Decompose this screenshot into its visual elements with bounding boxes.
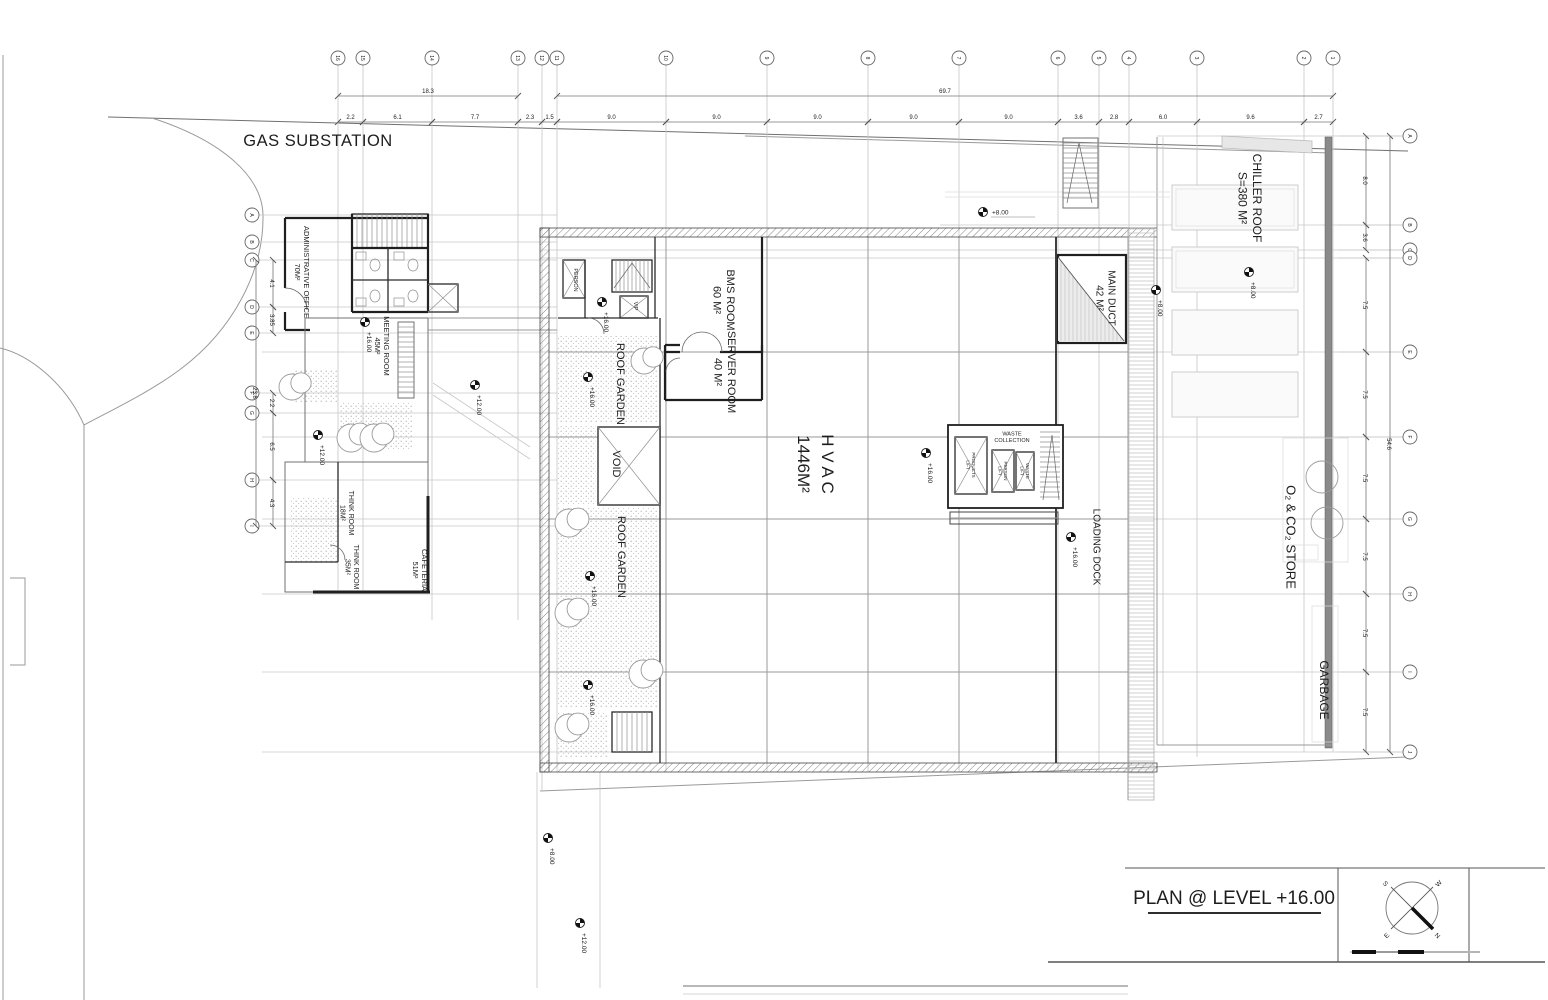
svg-text:7.5: 7.5 (1361, 708, 1367, 717)
dimension: 9.0 (764, 115, 871, 125)
level-marker: +12.00 (471, 381, 483, 416)
svg-text:6: 6 (1054, 57, 1060, 60)
svg-text:3.6: 3.6 (1361, 233, 1367, 242)
wall-band-left (540, 228, 549, 772)
svg-text:+16.00: +16.00 (590, 586, 597, 606)
svg-text:GAS SUBSTATION: GAS SUBSTATION (243, 132, 392, 150)
level-marker: +16.00 (598, 298, 610, 333)
grid-bubble-row-left-A: A (245, 208, 259, 222)
grid-bubble-col-11: 11 (550, 51, 564, 65)
svg-text:+8.00: +8.00 (548, 848, 555, 865)
grid-bubble-row-left-E: E (245, 326, 259, 340)
svg-text:GARBAGE: GARBAGE (1317, 660, 1331, 719)
core-stair-treads (614, 260, 650, 292)
compass-west: W (1434, 879, 1444, 889)
svg-text:1446M²: 1446M² (794, 435, 813, 493)
svg-text:9.6: 9.6 (1246, 115, 1255, 121)
svg-text:VOID: VOID (610, 451, 622, 478)
dimension: 3.85 (268, 304, 276, 336)
compass-south: S (1381, 880, 1389, 888)
svg-text:2.7: 2.7 (1314, 115, 1323, 121)
roof-garden-stipple-2 (558, 426, 596, 504)
loading-edge-strip (1128, 228, 1154, 800)
svg-text:8: 8 (864, 57, 870, 60)
level-marker: +12.00 (576, 919, 588, 954)
svg-text:35M²: 35M² (343, 559, 350, 576)
svg-text:60 M²: 60 M² (711, 286, 723, 314)
svg-text:THINK ROOM: THINK ROOM (347, 491, 354, 536)
svg-text:D: D (1406, 256, 1412, 260)
svg-text:23.8: 23.8 (251, 387, 257, 399)
think-room-18-label: THINK ROOM18M² (338, 491, 353, 536)
dimension: 9.0 (865, 115, 962, 125)
svg-text:4.1: 4.1 (268, 279, 274, 288)
svg-text:12: 12 (538, 55, 544, 61)
svg-text:3.85: 3.85 (268, 314, 274, 326)
svg-text:F: F (1406, 435, 1412, 438)
svg-text:9.0: 9.0 (607, 115, 616, 121)
annex-stair-2-treads (398, 327, 414, 392)
grid-bubble-row-right-A: A (1338, 129, 1417, 143)
svg-text:4.3: 4.3 (268, 499, 274, 508)
svg-text:LOADING DOCK: LOADING DOCK (1091, 509, 1102, 586)
svg-text:3: 3 (1193, 57, 1199, 60)
dimension: 6.0 (1126, 115, 1200, 125)
svg-text:7.7: 7.7 (471, 115, 480, 121)
level-marker: +16.00 (361, 318, 373, 353)
svg-text:+8.00: +8.00 (992, 210, 1009, 217)
dimension: 23.8 (251, 257, 259, 529)
svg-text:C: C (248, 258, 254, 262)
grid-bubble-col-4: 4 (1122, 51, 1136, 65)
right-wall (1325, 137, 1332, 748)
dimension: 8.0 (1361, 133, 1369, 228)
svg-text:+16.00: +16.00 (602, 312, 609, 332)
svg-text:10: 10 (662, 55, 668, 61)
svg-text:+16.00: +16.00 (1071, 547, 1078, 567)
svg-text:42 M²: 42 M² (1094, 285, 1105, 311)
svg-text:18.3: 18.3 (422, 89, 434, 95)
svg-text:PERSON: PERSON (1003, 461, 1008, 480)
svg-text:2: 2 (1300, 57, 1306, 60)
svg-text:7.5: 7.5 (1361, 552, 1367, 561)
grid-bubble-row-left-C: C (245, 253, 259, 267)
svg-text:7.5: 7.5 (1361, 301, 1367, 310)
svg-text:8.0: 8.0 (1361, 176, 1367, 185)
svg-text:7.5: 7.5 (1361, 474, 1367, 483)
grid-bubble-col-1: 1 (1326, 51, 1340, 65)
svg-text:+16.00: +16.00 (588, 695, 595, 715)
grid-bubble-col-5: 5 (1092, 51, 1106, 65)
dimension: 7.5 (1361, 591, 1369, 675)
meeting-room-label: MEETING ROOM45M² (373, 316, 391, 376)
dimension: 69.7 (554, 89, 1336, 99)
grid-bubble-row-left-D: D (245, 300, 259, 314)
grid-lines (259, 65, 1403, 790)
grid-bubble-col-6: 6 (1051, 51, 1065, 65)
svg-text:WASTE: WASTE (1002, 432, 1022, 438)
grid-bubble-col-2: 2 (1297, 51, 1311, 65)
svg-text:CAFETERIA: CAFETERIA (420, 549, 429, 591)
svg-text:+12.00: +12.00 (475, 395, 482, 415)
north-needle (1412, 908, 1433, 929)
svg-text:I: I (248, 525, 254, 526)
compass-north: N (1433, 932, 1441, 940)
svg-text:PERSON: PERSON (572, 268, 578, 291)
grid-bubble-row-left-G: G (245, 406, 259, 420)
svg-text:6.1: 6.1 (393, 115, 402, 121)
svg-text:9.0: 9.0 (813, 115, 822, 121)
dimension: 9.0 (554, 115, 669, 125)
scale-bar (1350, 950, 1480, 954)
dimension: 2.8 (1096, 115, 1132, 125)
dimension: 6.5 (268, 410, 276, 483)
compass-rose: S W E N (1381, 879, 1444, 941)
grid-bubble-row-right-J: J (1338, 745, 1417, 759)
garden-stair-treads (617, 712, 647, 752)
svg-text:6.0: 6.0 (1159, 115, 1168, 121)
dimension: 4.1 (268, 257, 276, 310)
svg-text:CHILLER ROOF: CHILLER ROOF (1250, 154, 1264, 243)
compass-east: E (1383, 932, 1391, 940)
dimension: 9.0 (663, 115, 770, 125)
wall-band-top (540, 228, 1157, 237)
chiller-unit-3 (1172, 310, 1298, 355)
garbage-label: GARBAGE (1317, 660, 1331, 719)
loading-dock-label: LOADING DOCK (1091, 509, 1102, 586)
svg-text:2.8: 2.8 (1110, 115, 1119, 121)
grid-bubble-row-right-I: I (1338, 665, 1417, 679)
svg-text:+16.00: +16.00 (926, 463, 933, 483)
grid-bubble-col-9: 9 (760, 51, 774, 65)
dimension: 9.0 (956, 115, 1061, 125)
svg-text:LIFT: LIFT (1020, 466, 1025, 476)
grid-bubble-row-right-G: G (1338, 512, 1417, 526)
dimension: 7.7 (429, 115, 521, 125)
svg-text:BMS ROOM: BMS ROOM (724, 269, 736, 330)
bms-room-label: BMS ROOM60 M² (711, 269, 736, 330)
roof-garden-lower-label: ROOF GARDEN (615, 516, 627, 598)
drawing-sheet: 16151413121110987654321ABCDEFGHIABCDEFGH… (0, 0, 1548, 1000)
vip-lift-label: VIP (632, 302, 638, 311)
think-patio-stipple (291, 498, 338, 562)
level-marker: +8.00 (979, 208, 1036, 218)
grid-bubble-col-14: 14 (425, 51, 439, 65)
grid-bubble-row-left-B: B (245, 235, 259, 249)
svg-text:54.6: 54.6 (1385, 438, 1391, 450)
dimension: 9.6 (1194, 115, 1307, 125)
svg-text:H: H (1406, 592, 1412, 596)
floor-plan-svg: 16151413121110987654321ABCDEFGHIABCDEFGH… (0, 0, 1548, 1000)
chiller-unit-2 (1172, 247, 1298, 292)
title-block: PLAN @ LEVEL +16.00 S W E N (1048, 868, 1545, 962)
dimension: 7.5 (1361, 516, 1369, 597)
svg-text:1: 1 (1329, 57, 1335, 60)
grid-bubble-row-right-F: F (1338, 430, 1417, 444)
svg-text:LIFT: LIFT (966, 460, 971, 470)
level-marker: +12.00 (314, 431, 326, 466)
svg-text:ROOF GARDEN: ROOF GARDEN (614, 343, 626, 425)
hvac-label: H V A C1446M² (794, 434, 837, 494)
level-marker: +16.00 (922, 449, 934, 484)
roof-garden-upper-label: ROOF GARDEN (614, 343, 626, 425)
grid-bubble-row-left-H: H (245, 473, 259, 487)
svg-text:VIP: VIP (632, 302, 638, 311)
tree (631, 347, 663, 374)
dimension: 3.6 (1361, 222, 1369, 253)
svg-text:+12.00: +12.00 (318, 445, 325, 465)
svg-text:2.2: 2.2 (346, 115, 355, 121)
void-label: VOID (610, 451, 622, 478)
svg-text:69.7: 69.7 (939, 89, 951, 95)
svg-text:18M²: 18M² (338, 505, 345, 522)
svg-text:70M²: 70M² (293, 263, 302, 281)
grid-bubble-row-right-B: B (1338, 218, 1417, 232)
plan-title: PLAN @ LEVEL +16.00 (1133, 888, 1335, 909)
svg-text:I: I (1406, 671, 1412, 672)
dimension: 54.6 (1385, 133, 1393, 755)
svg-text:LIFT: LIFT (998, 466, 1003, 476)
svg-text:9.0: 9.0 (909, 115, 918, 121)
svg-text:O₂ & CO₂ STORE: O₂ & CO₂ STORE (1283, 485, 1298, 589)
svg-text:40 M²: 40 M² (712, 358, 724, 386)
svg-text:+12.00: +12.00 (580, 933, 587, 953)
svg-text:H: H (248, 478, 254, 482)
svg-text:+8.00: +8.00 (1249, 282, 1256, 299)
svg-text:5: 5 (1095, 57, 1101, 60)
grid-bubble-col-15: 15 (356, 51, 370, 65)
road-curb (0, 348, 84, 425)
grid-bubble-row-right-E: E (1338, 345, 1417, 359)
svg-text:6.5: 6.5 (268, 442, 274, 451)
think-room-35-label: THINK ROOM35M² (343, 545, 358, 590)
svg-text:WASTE: WASTE (1025, 463, 1030, 479)
svg-text:D: D (248, 305, 254, 309)
grid-bubble-col-12: 12 (535, 51, 549, 65)
roof-stair-treads (1063, 143, 1098, 203)
svg-text:9.0: 9.0 (712, 115, 721, 121)
svg-text:+8.00: +8.00 (1156, 300, 1163, 317)
svg-text:9.0: 9.0 (1004, 115, 1013, 121)
svg-text:9: 9 (763, 57, 769, 60)
grid-bubble-col-13: 13 (511, 51, 525, 65)
svg-text:14: 14 (428, 55, 434, 61)
svg-text:3.6: 3.6 (1074, 115, 1083, 121)
gas-substation-label: GAS SUBSTATION (243, 132, 392, 150)
cafeteria-label: CAFETERIA51M² (411, 549, 429, 591)
svg-text:4: 4 (1125, 57, 1131, 60)
dimension: 2.7 (1301, 115, 1336, 125)
grid-bubble-row-right-D: D (1338, 251, 1417, 265)
grid-bubble-row-left-I: I (245, 519, 259, 533)
dimension: 7.5 (1361, 255, 1369, 355)
dimension: 4.3 (268, 477, 276, 529)
svg-text:2.3: 2.3 (526, 115, 535, 121)
grid-bubble-col-7: 7 (952, 51, 966, 65)
administrative-office-label: ADMINISTRATIVE OFFICE70M² (293, 226, 311, 318)
svg-text:ROOF GARDEN: ROOF GARDEN (615, 516, 627, 598)
svg-text:51M²: 51M² (411, 561, 420, 579)
chiller-unit-4 (1172, 372, 1298, 417)
road-edge (84, 118, 263, 1000)
dimension: 7.5 (1361, 669, 1369, 755)
dimension: 7.5 (1361, 349, 1369, 440)
svg-text:PRODUCTS: PRODUCTS (971, 452, 976, 477)
svg-text:ADMINISTRATIVE OFFICE: ADMINISTRATIVE OFFICE (302, 226, 311, 318)
road-island (10, 578, 25, 665)
svg-text:+16.00: +16.00 (588, 387, 595, 407)
svg-text:MAIN DUCT: MAIN DUCT (1106, 270, 1117, 326)
svg-text:2.2: 2.2 (268, 399, 274, 408)
svg-text:1.5: 1.5 (545, 115, 554, 121)
grid-bubble-col-10: 10 (659, 51, 673, 65)
svg-text:7: 7 (955, 57, 961, 60)
annex-stair-treads (357, 214, 422, 248)
grid-bubble-col-3: 3 (1190, 51, 1204, 65)
annex-building (285, 214, 557, 592)
level-marker: +16.00 (1067, 533, 1079, 568)
chiller-unit-1 (1172, 185, 1298, 230)
level-marker: +8.00 (544, 834, 556, 865)
svg-text:45M²: 45M² (373, 337, 382, 355)
grid-bubble-row-right-H: H (1338, 587, 1417, 601)
svg-text:SERVER ROOM: SERVER ROOM (725, 331, 737, 413)
dimension: 7.5 (1361, 434, 1369, 522)
svg-text:16: 16 (334, 55, 340, 61)
grid-bubble-col-16: 16 (331, 51, 345, 65)
svg-text:G: G (1406, 517, 1412, 521)
svg-text:G: G (248, 411, 254, 415)
svg-text:S=380 M²: S=380 M² (1236, 172, 1250, 224)
svg-text:H V A C: H V A C (818, 434, 837, 494)
person-lift-label: PERSON (572, 268, 578, 291)
o2-co2-store-label: O₂ & CO₂ STORE (1283, 485, 1298, 589)
main-building (540, 228, 1157, 800)
grid-bubble-col-8: 8 (861, 51, 875, 65)
svg-text:THINK ROOM: THINK ROOM (352, 545, 359, 590)
svg-text:COLLECTION: COLLECTION (994, 438, 1029, 444)
svg-text:7.5: 7.5 (1361, 629, 1367, 638)
dimension: 3.6 (1055, 115, 1102, 125)
svg-text:15: 15 (359, 55, 365, 61)
svg-text:+16.00: +16.00 (365, 332, 372, 352)
svg-text:7.5: 7.5 (1361, 390, 1367, 399)
wall-band-bottom (540, 763, 1157, 772)
svg-text:11: 11 (553, 55, 559, 60)
svg-text:MEETING ROOM: MEETING ROOM (382, 316, 391, 376)
svg-text:13: 13 (514, 55, 520, 61)
